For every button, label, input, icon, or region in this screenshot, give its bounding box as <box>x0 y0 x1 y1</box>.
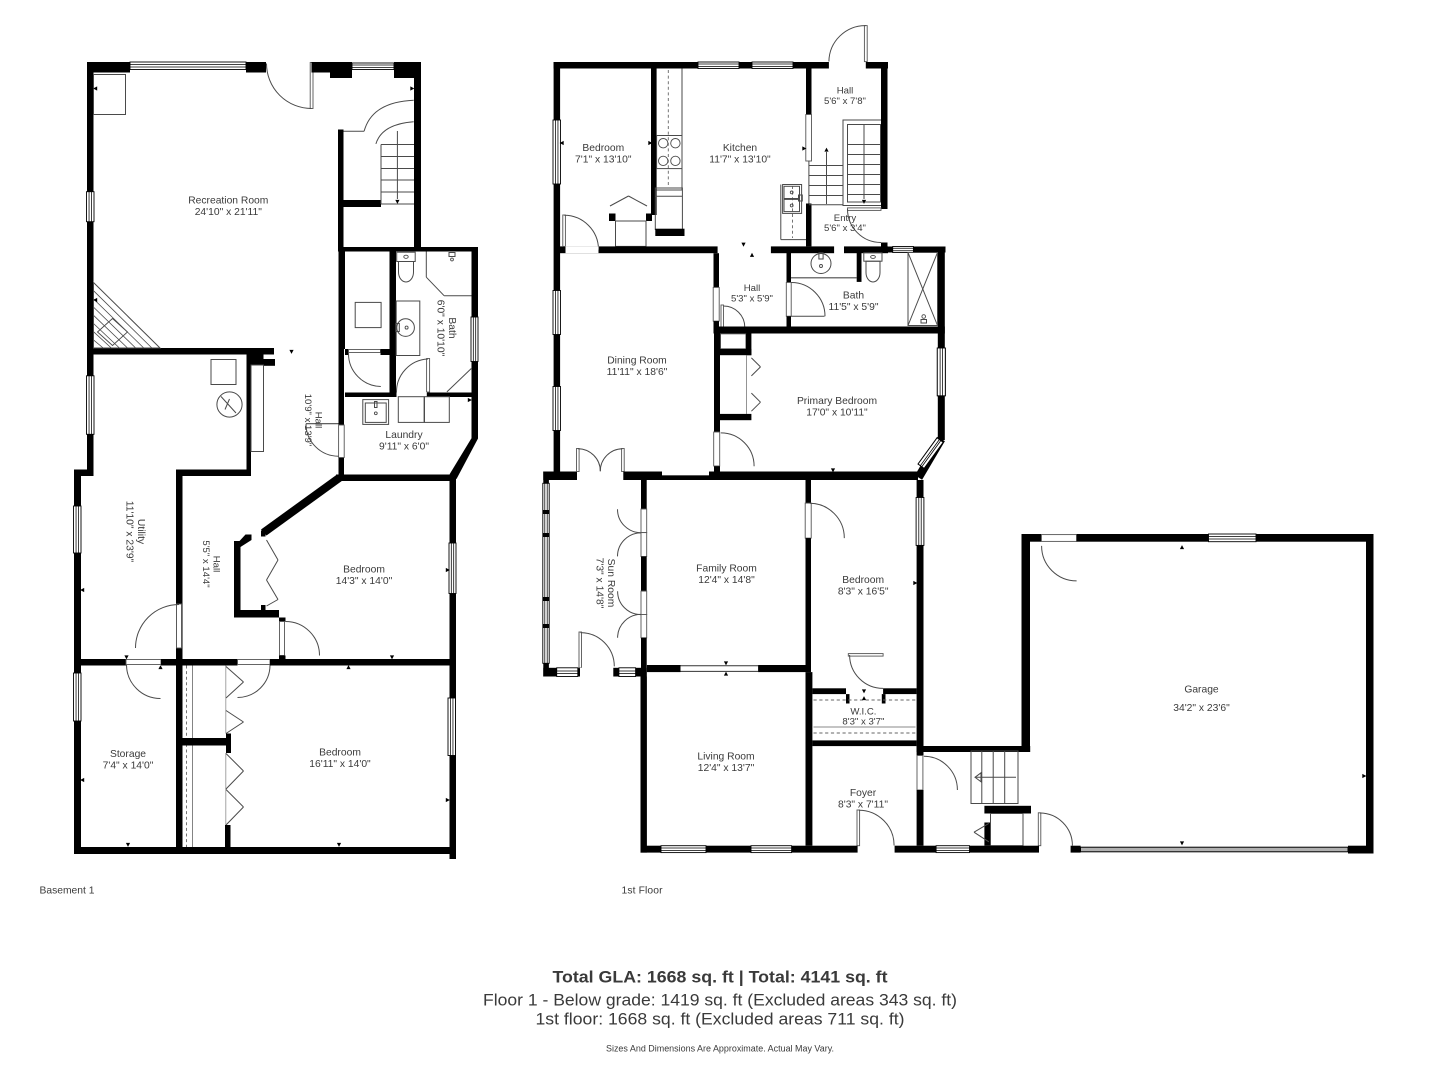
svg-text:Bedroom8'3" x 16'5": Bedroom8'3" x 16'5" <box>838 575 889 598</box>
svg-text:Basement 1: Basement 1 <box>40 886 95 897</box>
svg-text:Dining Room11'11" x 18'6": Dining Room11'11" x 18'6" <box>607 356 668 379</box>
svg-text:Living Room12'4" x 13'7": Living Room12'4" x 13'7" <box>697 752 754 775</box>
svg-text:1st Floor: 1st Floor <box>622 886 664 897</box>
svg-text:Laundry9'11" x 6'0": Laundry9'11" x 6'0" <box>379 430 429 453</box>
svg-text:Bedroom14'3" x 14'0": Bedroom14'3" x 14'0" <box>336 565 393 588</box>
svg-text:Floor 1 - Below grade: 1419 sq: Floor 1 - Below grade: 1419 sq. ft (Excl… <box>483 991 957 1010</box>
svg-text:1st floor: 1668 sq. ft (Exclud: 1st floor: 1668 sq. ft (Excluded areas 7… <box>536 1010 905 1029</box>
svg-text:Sun Room7'3" x 14'8": Sun Room7'3" x 14'8" <box>594 558 616 609</box>
svg-text:Bedroom7'1" x 13'10": Bedroom7'1" x 13'10" <box>575 143 632 166</box>
svg-text:Total GLA: 1668 sq. ft | Total: Total GLA: 1668 sq. ft | Total: 4141 sq.… <box>553 969 889 987</box>
svg-text:Primary Bedroom17'0" x 10'11": Primary Bedroom17'0" x 10'11" <box>797 396 877 419</box>
svg-text:Family Room12'4" x 14'8": Family Room12'4" x 14'8" <box>696 563 757 586</box>
svg-text:Recreation Room24'10" x 21'11": Recreation Room24'10" x 21'11" <box>188 195 268 218</box>
svg-text:Sizes And Dimensions Are Appro: Sizes And Dimensions Are Approximate. Ac… <box>606 1044 834 1054</box>
